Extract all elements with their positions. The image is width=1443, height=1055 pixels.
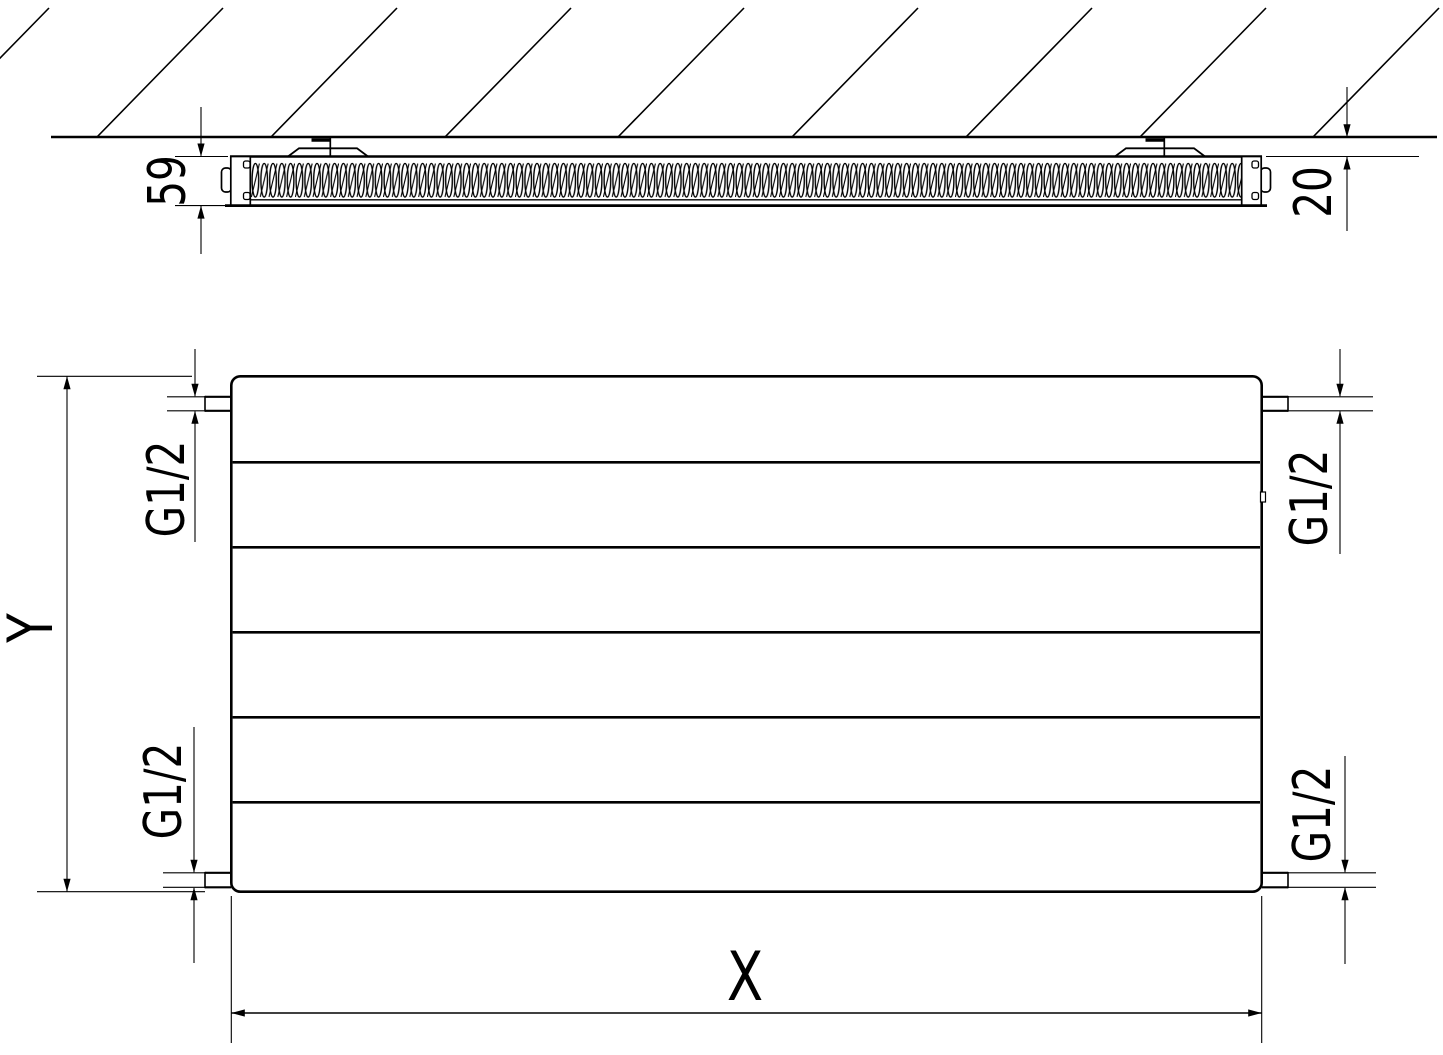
depth-dimension: 59 bbox=[137, 107, 228, 254]
connection-dimension-bottom-left: G1/2 bbox=[133, 727, 198, 963]
convector-fins bbox=[251, 162, 1242, 199]
width-dimension: X bbox=[231, 896, 1261, 1043]
arrowhead-right bbox=[1248, 1009, 1262, 1016]
left-end-cap bbox=[222, 157, 251, 206]
wall-hatching bbox=[0, 8, 1439, 137]
right-wall-bracket bbox=[1115, 138, 1205, 157]
air-vent-mark bbox=[1261, 492, 1266, 502]
height-dimension-label: Y bbox=[0, 612, 68, 643]
arrowhead-down bbox=[1341, 860, 1348, 873]
arrowhead-up bbox=[1343, 157, 1350, 170]
technical-drawing-canvas: 59 20 bbox=[0, 0, 1443, 1055]
connection-label-top-left: G1/2 bbox=[136, 441, 196, 538]
connection-label-top-right: G1/2 bbox=[1279, 450, 1339, 547]
arrowhead-up bbox=[1341, 887, 1348, 900]
left-wall-bracket bbox=[288, 138, 368, 157]
radiator-face bbox=[231, 376, 1261, 891]
arrowhead-left bbox=[231, 1009, 245, 1016]
arrowhead-down bbox=[63, 879, 70, 892]
pipe-stub-bottom-right bbox=[1262, 872, 1376, 888]
radiator-front-view bbox=[163, 376, 1376, 891]
wall-clearance-dimension-label: 20 bbox=[1283, 166, 1343, 218]
wall-section bbox=[0, 8, 1439, 137]
wall-clearance-dimension: 20 bbox=[1266, 87, 1419, 231]
width-dimension-label: X bbox=[727, 938, 763, 1017]
arrowhead-down bbox=[197, 144, 204, 157]
arrowhead-down bbox=[190, 860, 197, 873]
right-end-cap bbox=[1242, 157, 1271, 206]
arrowhead-up bbox=[191, 411, 198, 424]
radiator-cross-section bbox=[222, 138, 1271, 206]
pipe-stub-top-right bbox=[1262, 396, 1373, 412]
arrowhead-down bbox=[1343, 124, 1350, 137]
arrowhead-down bbox=[1336, 384, 1343, 397]
connection-dimension-top-right: G1/2 bbox=[1279, 349, 1344, 554]
pipe-stub-bottom-left bbox=[163, 872, 231, 888]
arrowhead-up bbox=[63, 376, 70, 389]
depth-dimension-label: 59 bbox=[137, 155, 197, 207]
radiator-technical-drawing: 59 20 bbox=[0, 0, 1443, 1055]
arrowhead-up bbox=[1336, 411, 1343, 424]
arrowhead-up bbox=[197, 206, 204, 219]
connection-label-bottom-left: G1/2 bbox=[133, 743, 193, 840]
arrowhead-down bbox=[191, 384, 198, 397]
connection-label-bottom-right: G1/2 bbox=[1282, 766, 1342, 863]
arrowhead-up bbox=[190, 887, 197, 900]
connection-dimension-top-left: G1/2 bbox=[136, 349, 199, 542]
pipe-stub-top-left bbox=[167, 396, 231, 412]
connection-dimension-bottom-right: G1/2 bbox=[1282, 756, 1349, 964]
